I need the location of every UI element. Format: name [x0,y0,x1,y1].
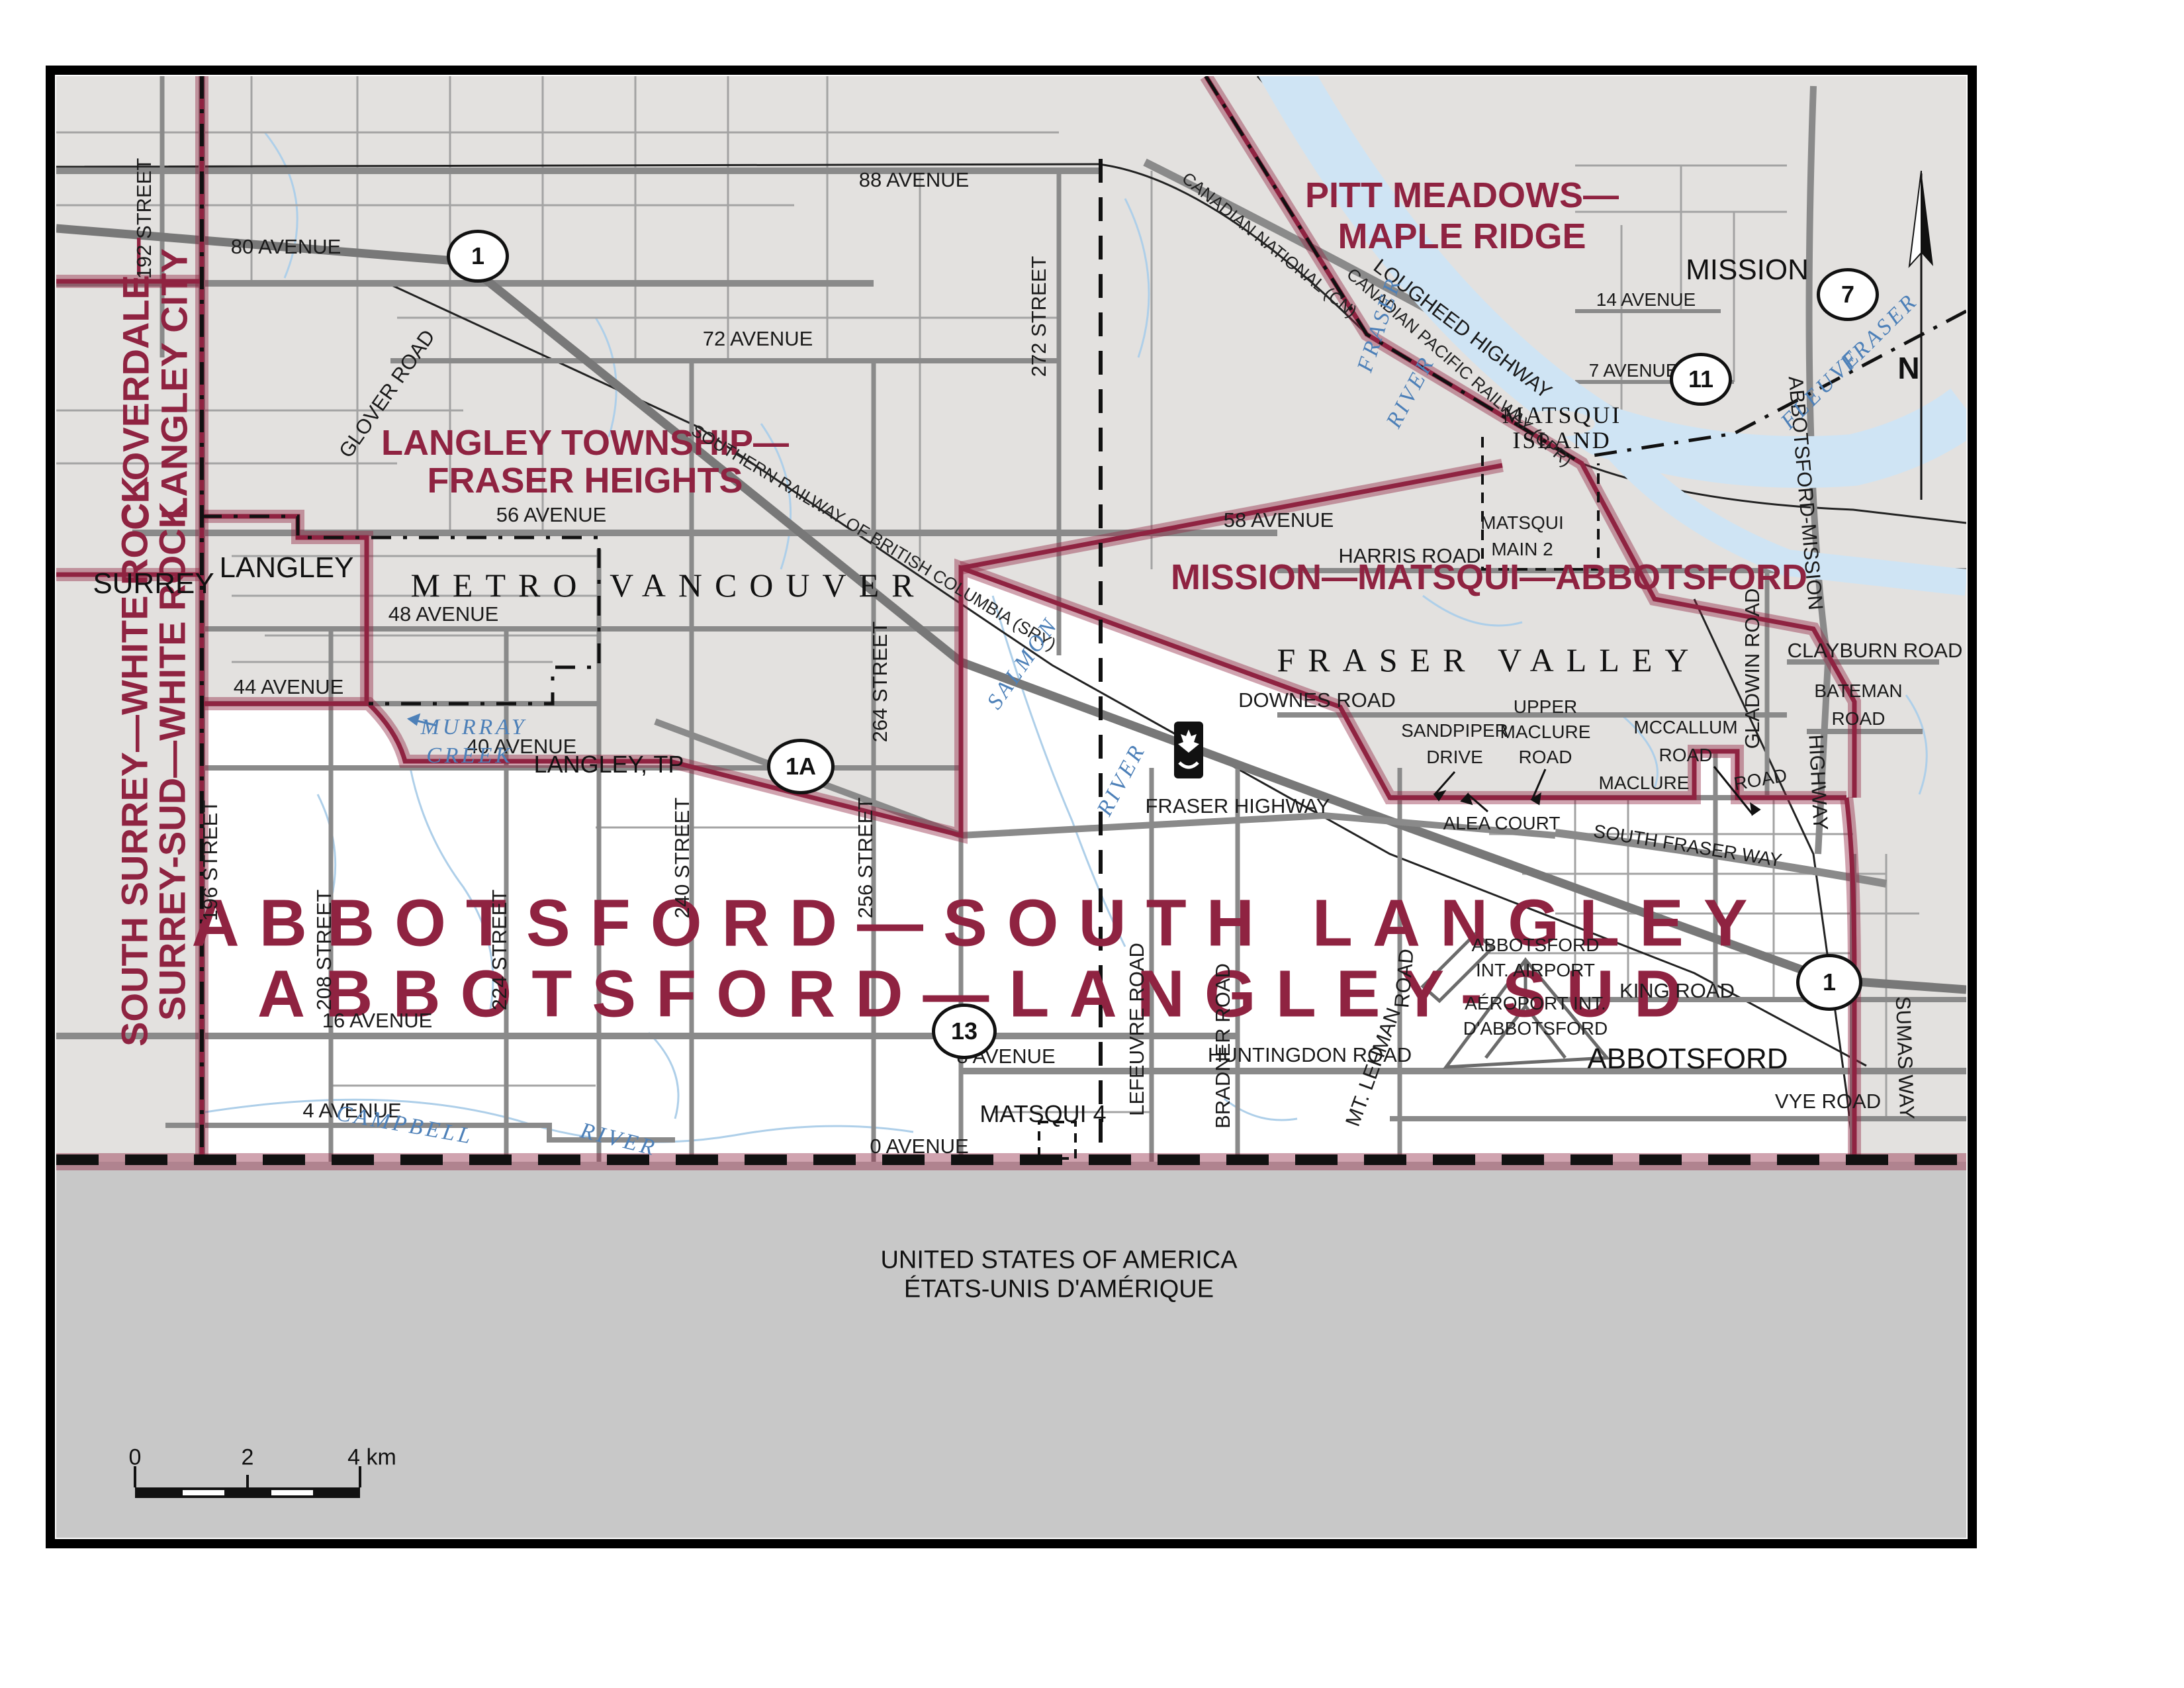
road-label: ROAD [1659,745,1713,766]
road-label: 14 AVENUE [1596,289,1696,310]
road-label: 58 AVENUE [1224,508,1334,532]
road-label: 88 AVENUE [859,168,970,192]
place-label: MATSQUI 4 [979,1100,1106,1128]
road-label: AÉROPORT INT. [1465,993,1606,1014]
road-label: GLADWIN ROAD [1741,588,1764,749]
road-label: FRASER VALLEY [1277,641,1701,679]
road-label: 16 AVENUE [322,1009,433,1033]
road-label: LEFEUVRE ROAD [1125,943,1149,1116]
road-label: 2 [242,1445,254,1471]
highway-shield: 7 [1817,268,1879,321]
road-label: 240 STREET [670,798,694,919]
road-label: ALEA COURT [1443,813,1561,834]
road-label: CLAYBURN ROAD [1788,639,1963,663]
road-label: FRASER HIGHWAY [1145,794,1330,818]
road-label: DOWNES ROAD [1238,688,1396,712]
road-label: HARRIS ROAD [1338,544,1480,568]
road-label: METRO VANCOUVER [410,566,926,604]
road-label: SUMAS WAY [1891,996,1919,1119]
place-label: MISSION [1686,254,1809,287]
road-label: 44 AVENUE [234,675,344,699]
place-label: ABBOTSFORD [1587,1043,1788,1076]
water-label: CREEK [426,743,513,769]
road-label: 208 STREET [312,890,336,1011]
road-label: 48 AVENUE [388,602,499,626]
district-label: SOUTH SURREY—WHITE ROCK [113,476,156,1047]
road-label: 272 STREET [1027,256,1051,377]
road-label: BATEMAN [1814,680,1902,702]
road-label: UPPER [1514,696,1577,718]
district-label: MISSION—MATSQUI—ABBOTSFORD [1171,557,1807,598]
maple-leaf-icon [1174,722,1203,778]
place-label: LANGLEY [220,551,354,585]
road-label: 264 STREET [868,622,892,743]
road-label: ROAD [1832,708,1886,729]
highway-shield: 1 [447,230,509,283]
highway-shield: 13 [932,1004,997,1059]
road-label: DRIVE [1426,747,1483,768]
road-label: 0 AVENUE [870,1135,968,1158]
highway-shield: 1 [1796,954,1862,1011]
district-label: FRASER HEIGHTS [427,460,743,501]
road-label: MATSQUI [1480,512,1563,534]
road-label: MCCALLUM [1633,717,1737,738]
road-label: MAIN 2 [1491,539,1553,560]
water-label: MURRAY [421,715,527,740]
road-label: MACLURE [1500,722,1591,743]
road-label: SANDPIPER [1401,720,1508,741]
road-label: 7 AVENUE [1589,360,1678,381]
road-label: ROAD [1519,747,1572,768]
road-label: UNITED STATES OF AMERICA [880,1246,1237,1275]
road-label: 4 km [347,1445,396,1471]
usa-area [56,1162,1966,1538]
road-label: 224 STREET [488,890,512,1011]
road-label: BRADNER ROAD [1211,963,1235,1129]
road-label: ABBOTSFORD [1472,935,1600,956]
road-label: KING ROAD [1619,979,1735,1003]
road-label: HIGHWAY [1803,734,1833,831]
road-label: INT. AIRPORT [1476,960,1595,981]
road-label: 196 STREET [199,800,222,921]
road-label: N [1897,350,1919,386]
road-label: D'ABBOTSFORD [1463,1018,1608,1039]
highway-shield: 11 [1670,353,1732,406]
road-label: 256 STREET [854,798,878,919]
district-label: MAPLE RIDGE [1338,216,1586,257]
road-label: VYE ROAD [1775,1090,1881,1113]
highway-shield: 1A [767,739,835,794]
road-label: 56 AVENUE [496,503,607,527]
road-label: 80 AVENUE [231,235,341,259]
district-label: LANGLEY CITY [153,248,196,520]
road-label: MACLURE [1599,773,1690,794]
road-label: 192 STREET [132,158,156,279]
map-canvas: ABBOTSFORD—SOUTH LANGLEYABBOTSFORD—LANGL… [0,0,2184,1688]
road-label: ÉTATS-UNIS D'AMÉRIQUE [904,1276,1214,1304]
place-label: SURREY [93,567,214,600]
district-label: PITT MEADOWS— [1305,175,1619,216]
road-label: 0 [129,1445,142,1471]
road-label: 72 AVENUE [703,327,813,351]
